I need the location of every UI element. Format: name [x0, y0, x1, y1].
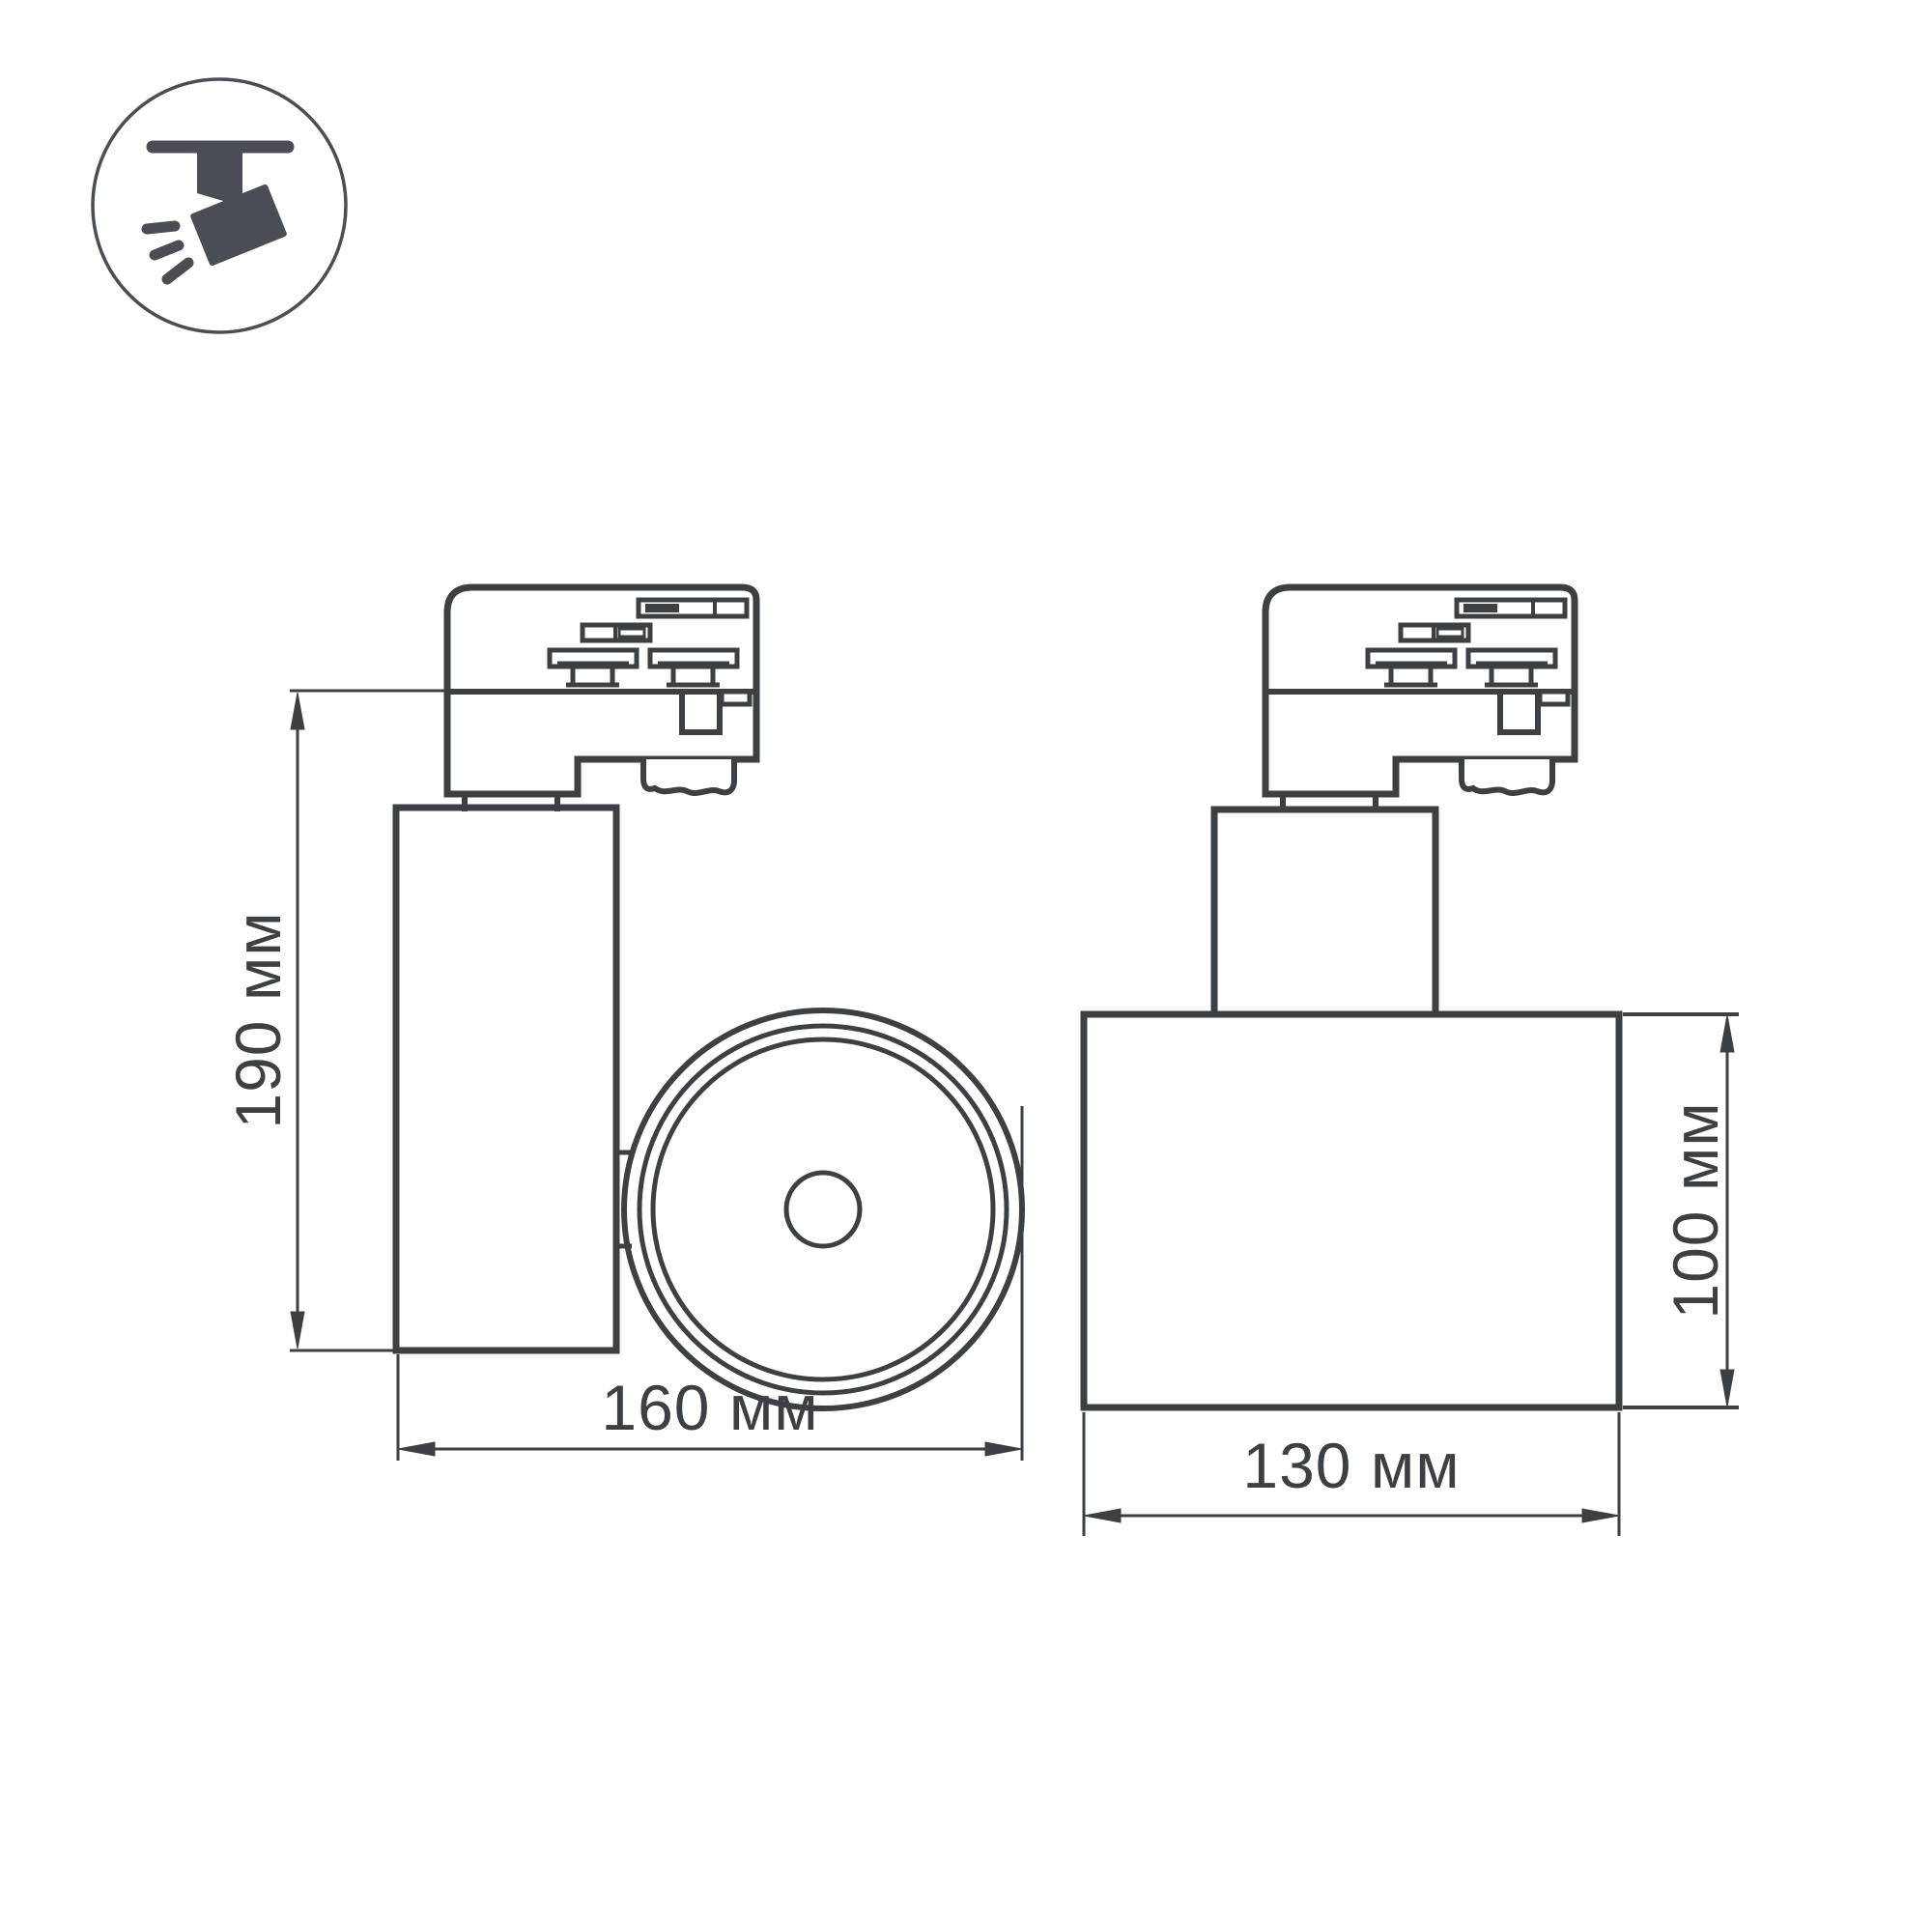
- dimension-label-160: 160 мм: [601, 1372, 818, 1443]
- arrowhead-left: [1084, 1509, 1121, 1522]
- arrowhead-left: [398, 1442, 435, 1456]
- dimension-height-front: 100 мм: [1623, 1014, 1739, 1407]
- arrowhead-right: [1582, 1509, 1619, 1522]
- icon-light-rays: [147, 226, 188, 279]
- front-mounting-neck: [1214, 810, 1435, 1016]
- track-spotlight-icon: [93, 79, 346, 332]
- side-lamp-body: [396, 808, 616, 1350]
- arrowhead-right: [985, 1442, 1022, 1456]
- side-track-adapter: [445, 587, 756, 811]
- dimension-label-100: 100 мм: [1660, 1101, 1731, 1319]
- front-lamp-body: [1084, 1014, 1619, 1407]
- arrowhead-up: [291, 693, 304, 729]
- side-view-drawing: [396, 587, 1022, 1408]
- arrowhead-down: [291, 1312, 304, 1349]
- side-lens-circle: [624, 1010, 1022, 1408]
- front-view-drawing: [1084, 587, 1619, 1407]
- dimension-label-130: 130 мм: [1242, 1430, 1460, 1501]
- technical-drawing-page: 190 мм 160 мм 100 мм 130 мм: [0, 0, 1932, 1932]
- dimension-label-190: 190 мм: [222, 911, 294, 1128]
- front-track-adapter: [1264, 587, 1575, 811]
- arrowhead-down: [1720, 1370, 1734, 1406]
- icon-lamp-head: [189, 184, 287, 267]
- dimension-drawing-svg: 190 мм 160 мм 100 мм 130 мм: [0, 0, 1932, 1932]
- dimension-width-front: 130 мм: [1084, 1412, 1619, 1536]
- arrowhead-up: [1720, 1015, 1734, 1052]
